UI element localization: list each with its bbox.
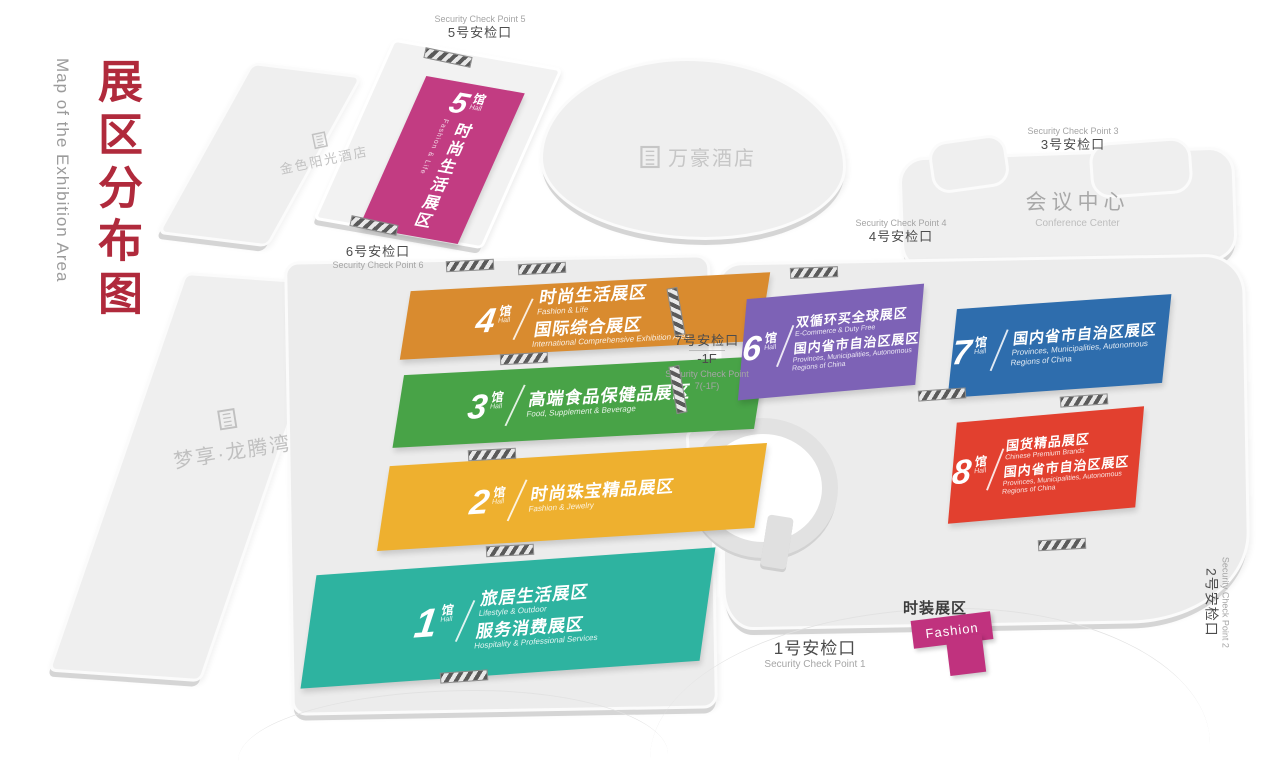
hall-8[interactable]: 8 馆 Hall 国货精品展区 Chinese Premium Brands 国…: [948, 406, 1144, 524]
checkpoint-1: 1号安检口 Security Check Point 1: [740, 638, 890, 672]
divider: [513, 298, 534, 340]
divider: [776, 325, 794, 367]
building-icon: [640, 145, 660, 169]
divider: [986, 448, 1004, 490]
gate-mark: [790, 266, 838, 279]
map-title-zh: 展区分布图: [84, 58, 149, 323]
conference-center-zh: 会议中心: [1026, 186, 1130, 216]
checkpoint-3: Security Check Point 3 3号安检口: [1008, 126, 1138, 154]
hall-7-id: 7 馆 Hall: [951, 336, 988, 369]
exhibition-map: Map of the Exhibition Area 展区分布图 金色阳光酒店 …: [0, 0, 1280, 776]
building-icon: [311, 131, 328, 150]
checkpoint-2: Security Check Point 2 2号安检口: [1202, 532, 1231, 672]
hall-6[interactable]: 6 馆 Hall 双循环买全球展区 E-Commerce & Duty Free…: [738, 284, 924, 401]
hall-3-id: 3 馆 Hall: [466, 391, 505, 424]
map-title: Map of the Exhibition Area 展区分布图: [52, 58, 149, 323]
checkpoint-6: 6号安检口 Security Check Point 6: [316, 244, 440, 272]
hall-4-id: 4 馆 Hall: [474, 304, 513, 337]
building-icon: [217, 407, 238, 432]
conference-center-label: 会议中心 Conference Center: [990, 186, 1165, 229]
fashion-zone-leg: [946, 634, 986, 676]
hall-1-id: 1 馆 Hall: [412, 604, 454, 643]
hall-7[interactable]: 7 馆 Hall 国内省市自治区展区 Provinces, Municipali…: [948, 294, 1172, 398]
divider: [990, 329, 1009, 371]
divider: [504, 385, 525, 427]
checkpoint-4: Security Check Point 4 4号安检口: [836, 218, 966, 246]
conference-center-en: Conference Center: [1035, 218, 1120, 229]
checkpoint-5: Security Check Point 5 5号安检口: [405, 14, 555, 42]
divider: [455, 600, 475, 642]
hall-8-id: 8 馆 Hall: [951, 455, 988, 489]
hall-2-id: 2 馆 Hall: [468, 486, 507, 519]
divider: [507, 480, 528, 522]
checkpoint-7-floor: -1F: [689, 350, 725, 367]
map-title-en: Map of the Exhibition Area: [52, 58, 72, 296]
marriott-hotel-label: 万豪酒店: [640, 142, 756, 171]
hall-5-id: 5 馆 Hall: [445, 89, 488, 120]
